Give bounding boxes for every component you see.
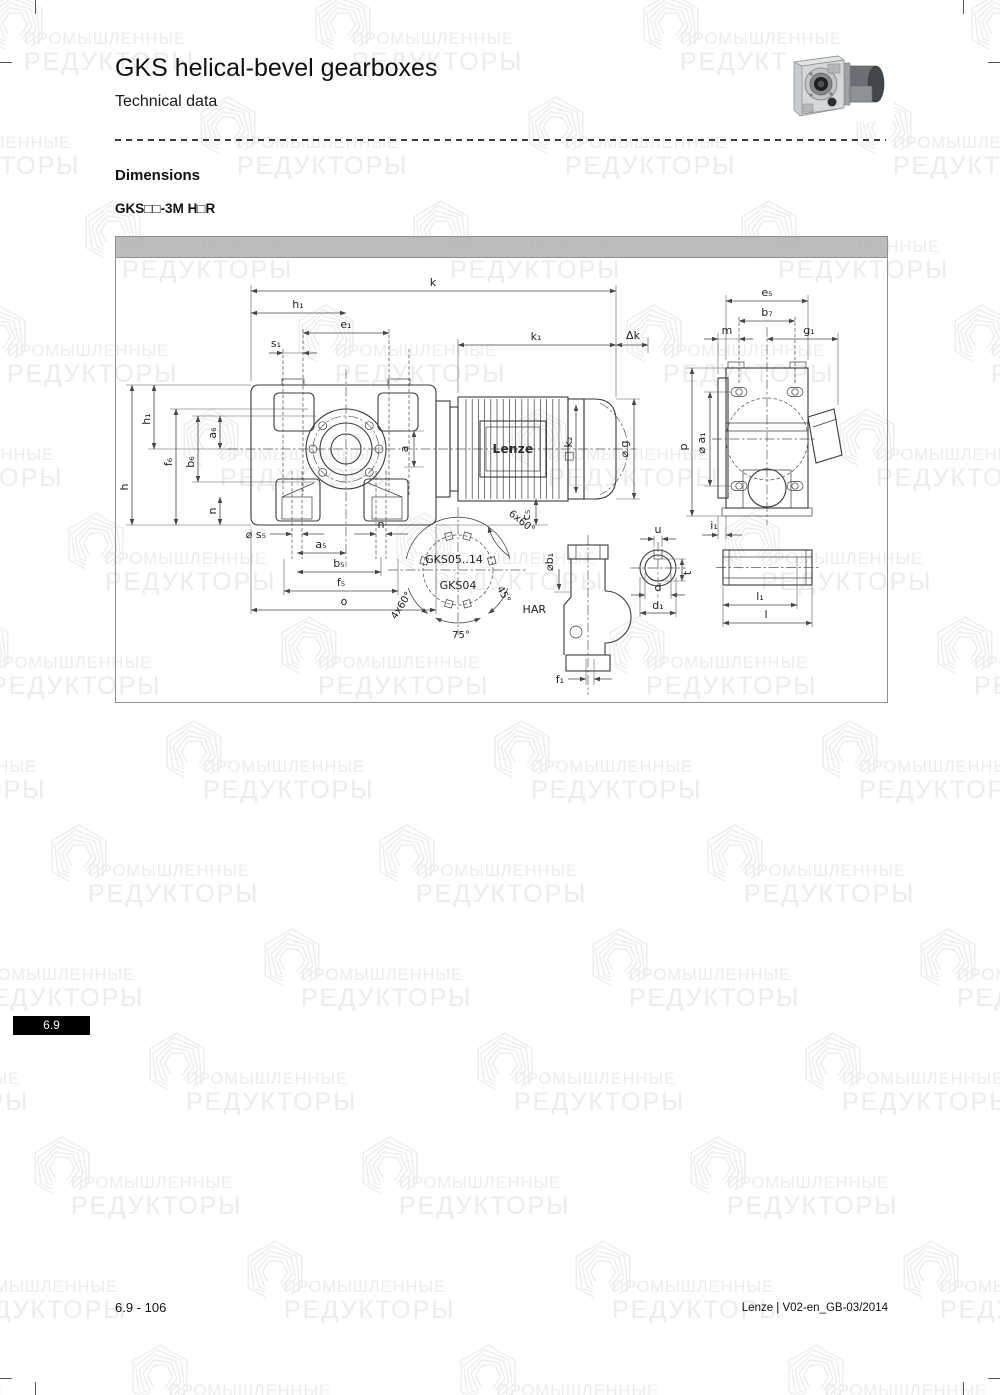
crop-mark [963, 0, 964, 14]
dim-label-k2: □ k₂ [562, 437, 575, 462]
dim-label-o: o [341, 595, 348, 608]
crop-mark [35, 0, 36, 14]
crop-mark [35, 1382, 36, 1395]
detail-label-har: HAR [523, 603, 547, 616]
dim-label-t: t [681, 570, 694, 575]
crop-mark [963, 1382, 964, 1395]
dim-label-k1: k₁ [531, 330, 542, 343]
bolt-circle-detail: GKS05..14 GKS04 6x60° 4x60° 45° 75° [388, 507, 537, 641]
dim-label-e1: e₁ [340, 318, 351, 331]
technical-drawing: Lenze k h₁ e₁ [116, 257, 887, 701]
dim-label-g: ⌀ g [618, 440, 631, 457]
dim-label-u: u [655, 523, 662, 536]
footer-page-number: 6.9 - 106 [115, 1300, 166, 1315]
dim-label-s1: s₁ [271, 337, 281, 350]
dim-label-f5: f₅ [337, 576, 345, 589]
detail-label-4x60: 4x60° [389, 590, 414, 621]
dim-label-h1-left: h₁ [140, 413, 153, 424]
crop-mark [0, 1378, 12, 1379]
crop-mark [988, 1378, 1000, 1379]
section-heading: Dimensions [115, 167, 200, 184]
dim-label-f6: f₆ [162, 457, 175, 466]
detail-label-gks04: GKS04 [440, 579, 477, 592]
front-view-dimensions: k h₁ e₁ s₁ k₁ Δk [118, 276, 648, 614]
product-photo-gearbox [786, 46, 894, 122]
crop-mark [988, 62, 1000, 63]
dim-label-k: k [430, 276, 437, 289]
dim-label-b7: b₇ [761, 306, 772, 319]
dim-label-a: a [398, 446, 411, 453]
dim-label-e5: e₅ [761, 286, 772, 299]
dim-label-n-bottom: n [378, 518, 385, 531]
page-title: GKS helical-bevel gearboxes [115, 54, 437, 83]
dim-label-d: d [655, 581, 662, 594]
dim-label-b6: b₆ [184, 456, 197, 468]
dim-label-i1: i₁ [710, 519, 717, 532]
dim-label-n-left: n [206, 507, 219, 514]
side-view [712, 327, 842, 525]
dim-label-a5: a₅ [315, 538, 326, 551]
page-content: GKS helical-bevel gearboxes Technical da… [0, 0, 1000, 1395]
dim-label-dk: Δk [626, 329, 641, 342]
dim-label-h: h [118, 483, 131, 490]
dim-label-b1: ⌀b₁ [543, 553, 556, 571]
dim-label-m: m [722, 324, 733, 337]
page: ПРОМЫШЛЕННЫЕРЕДУКТОРЫПРОМЫШЛЕННЫЕРЕДУКТО… [0, 0, 1000, 1395]
dim-label-p: p [677, 443, 690, 450]
har-section-detail: ⌀b₁ HAR f₁ [523, 535, 631, 695]
crop-mark [0, 62, 12, 63]
page-subtitle: Technical data [115, 93, 217, 111]
dim-label-s5: ⌀ s₅ [246, 528, 266, 541]
hollow-shaft-section: l₁ l [716, 550, 819, 627]
drawing-frame: Lenze k h₁ e₁ [115, 236, 888, 703]
dim-label-l1: l₁ [756, 590, 763, 603]
detail-label-45: 45° [494, 584, 512, 605]
dim-label-b5: b₅ [333, 557, 344, 570]
motor-brand-label: Lenze [493, 442, 534, 456]
dim-label-d1: d₁ [652, 599, 663, 612]
section-tab-badge: 6.9 [13, 1016, 90, 1035]
dim-label-g1: g₁ [803, 324, 814, 337]
side-view-dimensions: e₅ b₇ m g₁ p [677, 286, 838, 539]
detail-label-gks05-14: GKS05..14 [425, 553, 483, 566]
drawing-frame-header-bar [116, 237, 887, 258]
dim-label-a6: a₆ [206, 427, 219, 439]
dim-label-h1-top: h₁ [292, 298, 303, 311]
shaft-cross-section: u t d d₁ [630, 523, 694, 617]
model-code: GKS□□-3M H□R [115, 201, 215, 216]
detail-label-75: 75° [452, 630, 470, 641]
dim-label-a1: ⌀ a₁ [695, 432, 708, 453]
separator-dashed-line [115, 139, 886, 141]
dim-label-f1: f₁ [556, 673, 564, 686]
footer-doc-reference: Lenze | V02-en_GB-03/2014 [742, 1302, 888, 1314]
dim-label-l: l [764, 608, 767, 621]
